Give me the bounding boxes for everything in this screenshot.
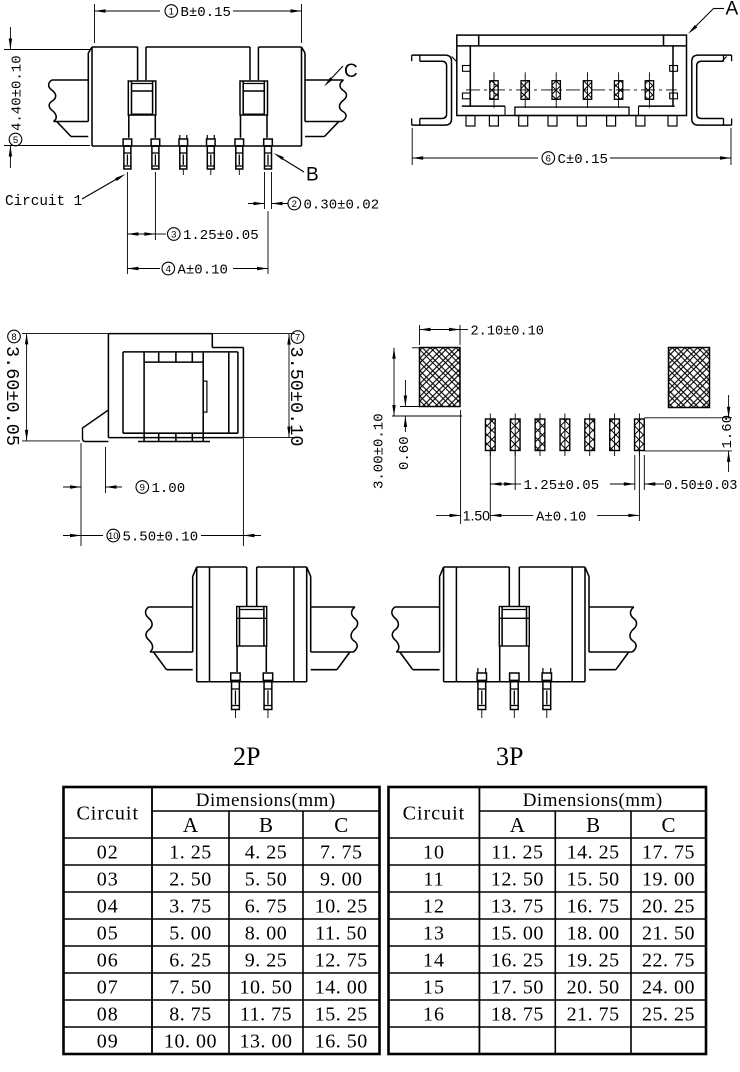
svg-text:10. 25: 10. 25 [315,896,368,918]
svg-text:09: 09 [97,1031,119,1053]
svg-text:14. 00: 14. 00 [315,977,368,999]
svg-text:10: 10 [423,842,445,864]
svg-text:C: C [334,813,348,837]
svg-text:20. 50: 20. 50 [567,977,620,999]
svg-text:06: 06 [97,950,119,972]
svg-text:02: 02 [97,842,119,864]
svg-text:21. 50: 21. 50 [642,923,695,945]
svg-text:1.60: 1.60 [720,415,736,449]
svg-text:21. 75: 21. 75 [567,1004,620,1026]
svg-text:05: 05 [97,923,119,945]
svg-text:14. 25: 14. 25 [567,842,620,864]
svg-text:A: A [726,0,739,20]
svg-text:10. 00: 10. 00 [164,1031,217,1053]
svg-text:16. 75: 16. 75 [567,896,620,918]
svg-text:1.25±0.05: 1.25±0.05 [524,478,600,494]
svg-text:2. 50: 2. 50 [169,869,212,891]
svg-text:7. 50: 7. 50 [169,977,212,999]
svg-text:07: 07 [97,977,119,999]
svg-text:19. 25: 19. 25 [567,950,620,972]
svg-text:B±0.15: B±0.15 [181,5,231,21]
svg-text:3.50±0.10: 3.50±0.10 [285,347,306,447]
svg-text:4.40±0.10: 4.40±0.10 [10,55,26,131]
svg-text:15: 15 [423,977,445,999]
svg-text:10: 10 [108,531,119,542]
svg-text:9. 25: 9. 25 [245,950,288,972]
svg-text:6. 75: 6. 75 [245,896,288,918]
svg-text:0.50±0.03: 0.50±0.03 [664,479,737,494]
svg-text:3P: 3P [496,742,523,771]
svg-text:15. 00: 15. 00 [491,923,544,945]
svg-text:18. 75: 18. 75 [491,1004,544,1026]
svg-text:1.25±0.05: 1.25±0.05 [183,228,259,244]
svg-text:5. 00: 5. 00 [169,923,212,945]
svg-text:14: 14 [423,950,445,972]
svg-text:B: B [586,813,600,837]
svg-text:11. 25: 11. 25 [491,842,543,864]
svg-text:2.10±0.10: 2.10±0.10 [471,325,544,340]
svg-text:11. 75: 11. 75 [240,1004,292,1026]
svg-text:1.00: 1.00 [152,481,186,497]
svg-text:2P: 2P [233,742,260,771]
svg-text:11: 11 [423,869,444,891]
svg-text:11. 50: 11. 50 [315,923,367,945]
svg-text:19. 00: 19. 00 [642,869,695,891]
svg-text:25. 25: 25. 25 [642,1004,695,1026]
svg-text:A±0.10: A±0.10 [178,263,228,279]
svg-text:1: 1 [169,6,174,17]
svg-text:2: 2 [292,199,297,210]
svg-text:12. 75: 12. 75 [315,950,368,972]
svg-text:8: 8 [11,332,16,343]
svg-text:C: C [344,61,358,82]
svg-text:Circuit: Circuit [76,803,139,825]
svg-text:08: 08 [97,1004,119,1026]
svg-text:5: 5 [13,135,18,146]
svg-text:16: 16 [423,1004,445,1026]
svg-text:4. 25: 4. 25 [245,842,288,864]
svg-text:13. 75: 13. 75 [491,896,544,918]
svg-text:8. 75: 8. 75 [169,1004,212,1026]
svg-text:Dimensions(mm): Dimensions(mm) [523,790,663,811]
svg-text:04: 04 [97,896,119,918]
svg-text:A: A [510,813,526,837]
svg-text:6: 6 [546,153,551,164]
svg-text:5.50±0.10: 5.50±0.10 [123,530,199,546]
svg-text:0.60: 0.60 [397,436,413,470]
svg-text:9. 00: 9. 00 [320,869,363,891]
svg-text:15. 25: 15. 25 [315,1004,368,1026]
svg-text:C±0.15: C±0.15 [558,152,608,168]
svg-text:A±0.10: A±0.10 [536,509,586,525]
svg-text:6. 25: 6. 25 [169,950,212,972]
svg-text:C: C [661,813,675,837]
svg-text:03: 03 [97,869,119,891]
svg-text:20. 25: 20. 25 [642,896,695,918]
svg-text:8. 00: 8. 00 [245,923,288,945]
svg-text:3.60±0.05: 3.60±0.05 [1,346,22,446]
svg-text:Circuit 1: Circuit 1 [5,194,82,210]
svg-text:5. 50: 5. 50 [245,869,288,891]
svg-text:1. 25: 1. 25 [169,842,212,864]
svg-text:22. 75: 22. 75 [642,950,695,972]
svg-text:3: 3 [171,229,176,240]
svg-text:13. 00: 13. 00 [240,1031,293,1053]
svg-text:12. 50: 12. 50 [491,869,544,891]
svg-text:Dimensions(mm): Dimensions(mm) [196,790,336,811]
svg-text:17. 75: 17. 75 [642,842,695,864]
svg-text:13: 13 [423,923,445,945]
svg-text:12: 12 [423,896,445,918]
svg-text:10. 50: 10. 50 [240,977,293,999]
svg-text:3. 75: 3. 75 [169,896,212,918]
svg-text:24. 00: 24. 00 [642,977,695,999]
svg-text:9: 9 [140,482,145,493]
svg-text:A: A [183,813,199,837]
svg-text:18. 00: 18. 00 [567,923,620,945]
svg-text:16. 25: 16. 25 [491,950,544,972]
svg-text:3.00±0.10: 3.00±0.10 [372,413,388,489]
svg-text:17. 50: 17. 50 [491,977,544,999]
svg-text:0.30±0.02: 0.30±0.02 [304,198,380,214]
svg-text:Circuit: Circuit [403,803,466,825]
svg-text:7. 75: 7. 75 [320,842,363,864]
svg-text:7: 7 [295,332,300,343]
svg-text:1.50: 1.50 [463,507,490,523]
svg-text:15. 50: 15. 50 [567,869,620,891]
svg-text:B: B [306,165,319,186]
svg-text:16. 50: 16. 50 [315,1031,368,1053]
svg-text:B: B [259,813,273,837]
svg-text:4: 4 [166,264,171,275]
